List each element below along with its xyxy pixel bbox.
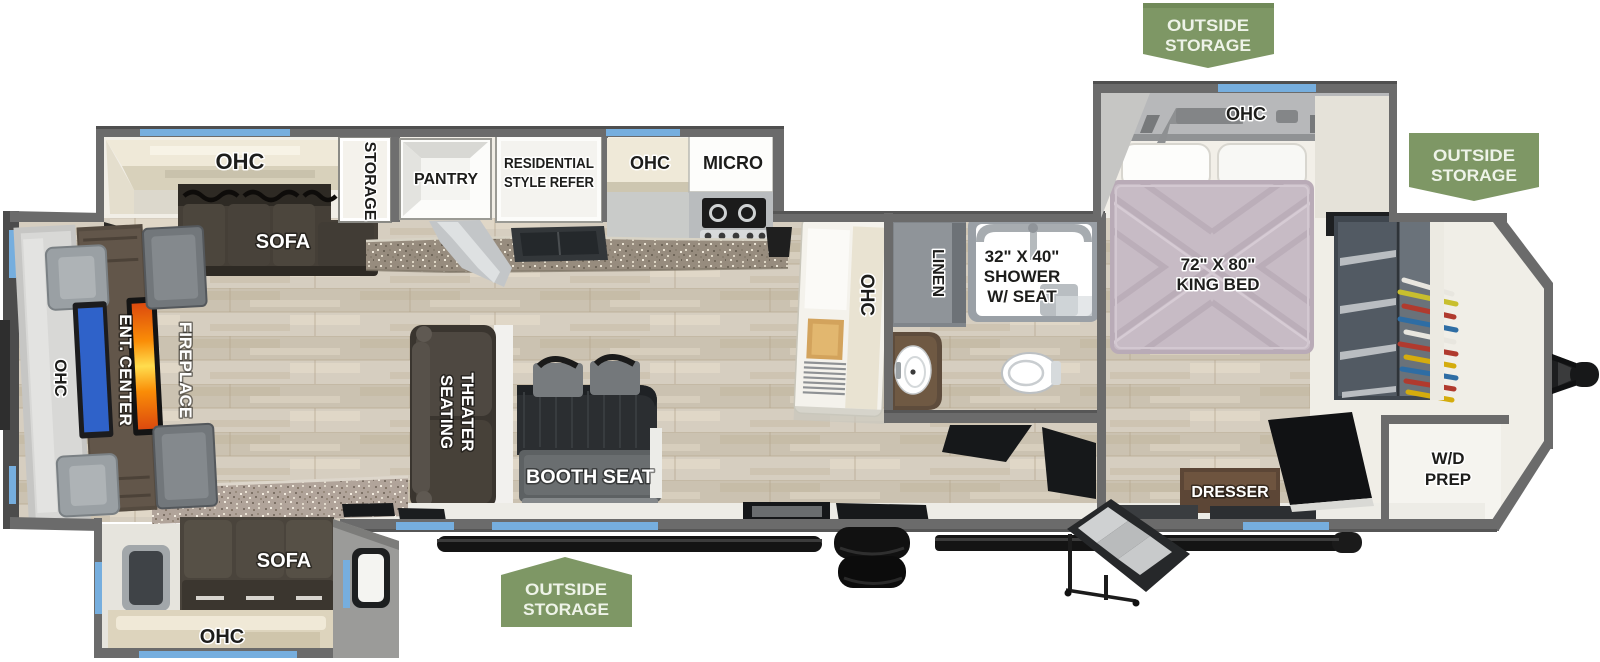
svg-text:ENT. CENTER: ENT. CENTER <box>116 314 135 425</box>
svg-text:OHC: OHC <box>216 149 265 174</box>
svg-text:PREP: PREP <box>1425 470 1471 489</box>
svg-text:W/ SEAT: W/ SEAT <box>987 287 1057 306</box>
svg-text:OHC: OHC <box>856 274 877 317</box>
svg-text:OUTSIDE: OUTSIDE <box>525 580 607 599</box>
svg-text:72" X 80": 72" X 80" <box>1181 255 1256 274</box>
svg-text:RESIDENTIAL: RESIDENTIAL <box>504 155 594 172</box>
svg-text:OHC: OHC <box>51 359 70 397</box>
svg-text:OHC: OHC <box>630 153 670 173</box>
svg-text:STORAGE: STORAGE <box>523 600 609 619</box>
svg-text:DRESSER: DRESSER <box>1191 484 1269 501</box>
svg-text:KING BED: KING BED <box>1176 275 1259 294</box>
svg-text:THEATER: THEATER <box>458 372 477 451</box>
svg-text:OUTSIDE: OUTSIDE <box>1433 146 1515 165</box>
svg-text:STYLE REFER: STYLE REFER <box>504 174 594 191</box>
svg-text:OHC: OHC <box>200 626 244 648</box>
svg-text:STORAGE: STORAGE <box>361 142 378 221</box>
svg-text:PANTRY: PANTRY <box>414 171 478 188</box>
svg-text:OUTSIDE: OUTSIDE <box>1167 16 1249 35</box>
svg-text:SEATING: SEATING <box>437 375 456 449</box>
svg-text:SHOWER: SHOWER <box>984 267 1061 286</box>
svg-text:SOFA: SOFA <box>257 550 311 572</box>
svg-text:OHC: OHC <box>1226 104 1266 124</box>
svg-text:BOOTH SEAT: BOOTH SEAT <box>526 467 654 488</box>
svg-text:STORAGE: STORAGE <box>1431 166 1517 185</box>
svg-text:FIREPLACE: FIREPLACE <box>176 322 195 418</box>
svg-text:SOFA: SOFA <box>256 231 310 253</box>
svg-text:STORAGE: STORAGE <box>1165 36 1251 55</box>
svg-text:W/D: W/D <box>1431 449 1464 468</box>
svg-text:32" X 40": 32" X 40" <box>985 247 1060 266</box>
svg-text:MICRO: MICRO <box>703 153 763 173</box>
svg-text:LINEN: LINEN <box>929 249 946 297</box>
